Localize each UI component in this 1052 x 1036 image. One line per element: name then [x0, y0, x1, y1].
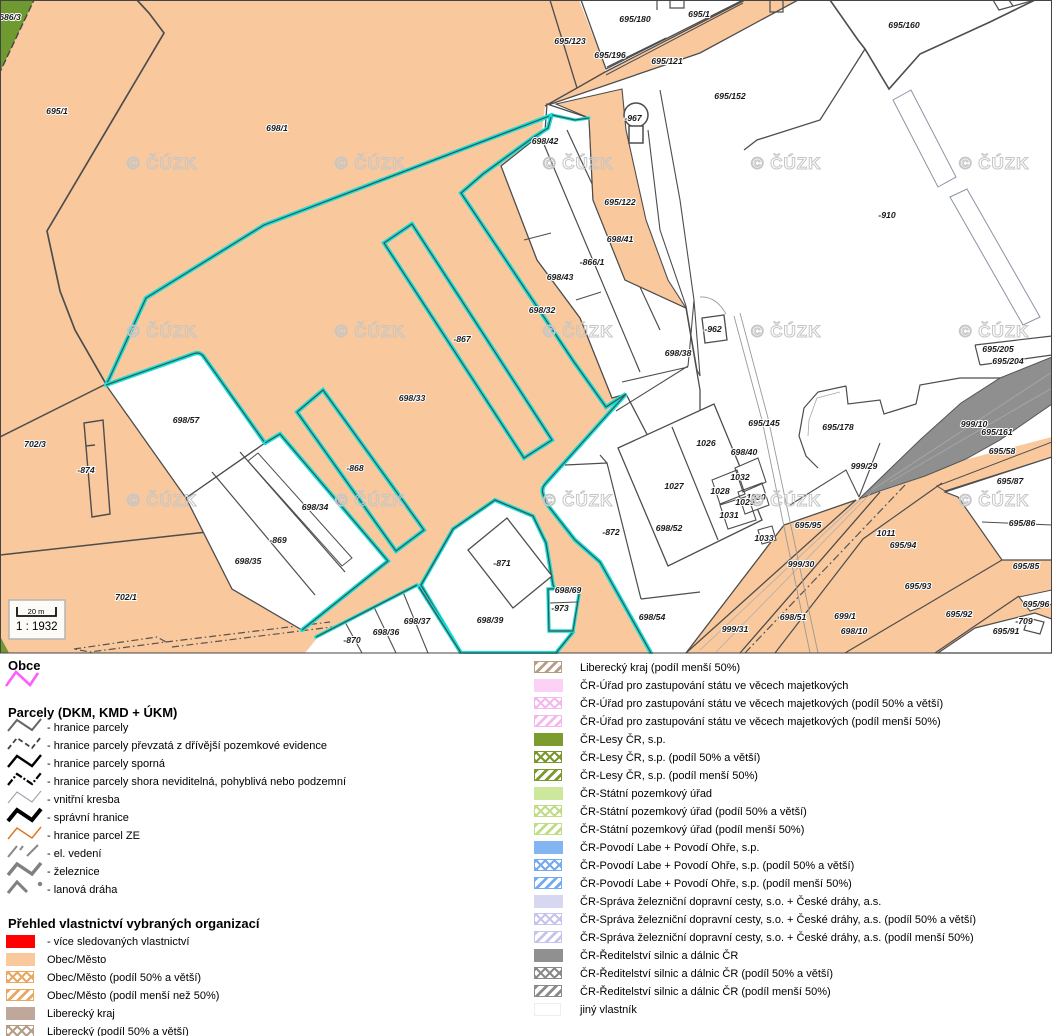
svg-text:695/152: 695/152 [714, 91, 746, 101]
svg-text:-874: -874 [77, 465, 95, 475]
svg-text:698/1: 698/1 [266, 123, 288, 133]
svg-text:-967: -967 [624, 113, 643, 123]
svg-text:1032: 1032 [730, 472, 749, 482]
svg-text:695/160: 695/160 [888, 20, 920, 30]
svg-text:© ČÚZK: © ČÚZK [127, 322, 197, 341]
svg-text:695/85: 695/85 [1013, 561, 1040, 571]
svg-text:-973: -973 [551, 603, 569, 613]
svg-text:686/3: 686/3 [0, 12, 21, 22]
svg-text:698/42: 698/42 [532, 136, 559, 146]
svg-text:1031: 1031 [719, 510, 738, 520]
svg-text:-872: -872 [602, 527, 620, 537]
svg-text:© ČÚZK: © ČÚZK [959, 154, 1029, 173]
svg-text:999/31: 999/31 [722, 624, 749, 634]
svg-text:698/10: 698/10 [841, 626, 868, 636]
svg-text:1033: 1033 [754, 533, 773, 543]
svg-text:-868: -868 [346, 463, 364, 473]
svg-text:695/180: 695/180 [619, 14, 651, 24]
svg-text:-962: -962 [704, 324, 722, 334]
svg-text:-871: -871 [493, 558, 511, 568]
svg-text:© ČÚZK: © ČÚZK [127, 154, 197, 173]
svg-text:999/29: 999/29 [851, 461, 878, 471]
svg-text:695/93: 695/93 [905, 581, 932, 591]
svg-text:698/37: 698/37 [404, 616, 432, 626]
svg-text:698/52: 698/52 [656, 523, 683, 533]
svg-text:695/178: 695/178 [822, 422, 854, 432]
svg-text:695/205: 695/205 [982, 344, 1014, 354]
svg-text:-866/1: -866/1 [580, 257, 605, 267]
svg-text:1026: 1026 [696, 438, 715, 448]
svg-text:698/35: 698/35 [235, 556, 262, 566]
svg-text:695/1: 695/1 [46, 106, 68, 116]
svg-text:695/95: 695/95 [795, 520, 822, 530]
svg-text:© ČÚZK: © ČÚZK [751, 491, 821, 510]
svg-text:698/51: 698/51 [780, 612, 807, 622]
svg-text:999/30: 999/30 [788, 559, 815, 569]
svg-text:20 m: 20 m [28, 607, 45, 616]
svg-text:© ČÚZK: © ČÚZK [543, 154, 613, 173]
svg-text:698/69: 698/69 [555, 585, 582, 595]
svg-text:702/3: 702/3 [24, 439, 46, 449]
svg-text:698/36: 698/36 [373, 627, 400, 637]
svg-text:© ČÚZK: © ČÚZK [335, 154, 405, 173]
svg-text:698/40: 698/40 [731, 447, 758, 457]
svg-text:698/57: 698/57 [173, 415, 201, 425]
svg-text:695/87: 695/87 [997, 476, 1025, 486]
svg-text:698/41: 698/41 [607, 234, 634, 244]
svg-text:698/43: 698/43 [547, 272, 574, 282]
svg-text:© ČÚZK: © ČÚZK [335, 491, 405, 510]
svg-text:-910: -910 [878, 210, 896, 220]
svg-text:© ČÚZK: © ČÚZK [543, 491, 613, 510]
svg-text:698/33: 698/33 [399, 393, 426, 403]
svg-text:© ČÚZK: © ČÚZK [959, 322, 1029, 341]
svg-text:699/1: 699/1 [834, 611, 856, 621]
svg-text:698/39: 698/39 [477, 615, 504, 625]
svg-text:-869: -869 [269, 535, 287, 545]
svg-text:-870: -870 [343, 635, 361, 645]
svg-text:© ČÚZK: © ČÚZK [335, 322, 405, 341]
svg-text:695/91: 695/91 [993, 626, 1020, 636]
svg-text:695/196: 695/196 [594, 50, 626, 60]
svg-text:-709: -709 [1015, 616, 1033, 626]
svg-text:-867: -867 [453, 334, 472, 344]
svg-text:1028: 1028 [710, 486, 729, 496]
svg-text:© ČÚZK: © ČÚZK [959, 491, 1029, 510]
svg-text:695/161: 695/161 [981, 427, 1013, 437]
svg-text:698/38: 698/38 [665, 348, 692, 358]
svg-text:695/92: 695/92 [946, 609, 973, 619]
svg-text:695/121: 695/121 [651, 56, 683, 66]
svg-text:695/204: 695/204 [992, 356, 1024, 366]
svg-text:695/94: 695/94 [890, 540, 917, 550]
svg-text:695/86: 695/86 [1009, 518, 1036, 528]
svg-text:© ČÚZK: © ČÚZK [543, 322, 613, 341]
svg-text:1 : 1932: 1 : 1932 [16, 621, 58, 633]
svg-text:695/1: 695/1 [688, 9, 710, 19]
svg-text:695/58: 695/58 [989, 446, 1016, 456]
svg-text:© ČÚZK: © ČÚZK [127, 491, 197, 510]
svg-text:1011: 1011 [877, 528, 896, 538]
svg-text:1027: 1027 [664, 481, 684, 491]
svg-text:695/122: 695/122 [604, 197, 636, 207]
svg-text:698/54: 698/54 [639, 612, 666, 622]
svg-text:695/145: 695/145 [748, 418, 780, 428]
svg-text:695/96: 695/96 [1023, 599, 1050, 609]
svg-text:© ČÚZK: © ČÚZK [751, 322, 821, 341]
svg-text:© ČÚZK: © ČÚZK [751, 154, 821, 173]
svg-text:698/32: 698/32 [529, 305, 556, 315]
svg-text:695/123: 695/123 [554, 36, 586, 46]
svg-text:702/1: 702/1 [115, 592, 137, 602]
svg-text:698/34: 698/34 [302, 502, 329, 512]
